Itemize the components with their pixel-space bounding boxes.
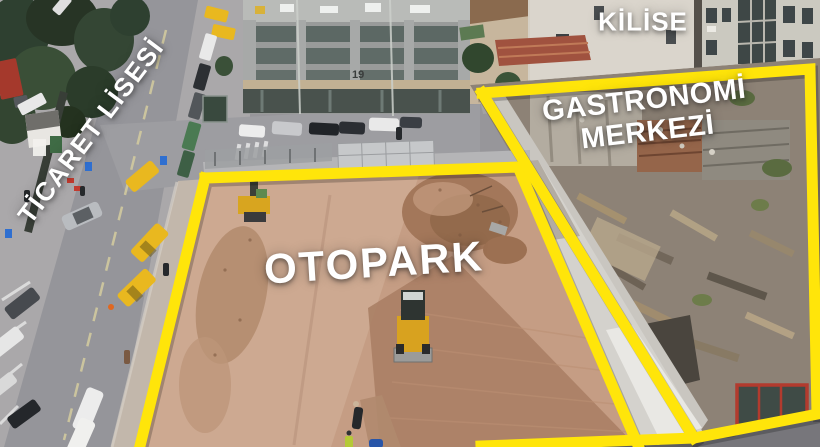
building-sign: 19 <box>352 69 364 81</box>
label-kilise: KİLİSE <box>598 8 688 37</box>
bus-shelter <box>203 96 227 122</box>
annotated-aerial-photo: 19 <box>0 0 820 447</box>
concrete-blocks <box>338 140 435 168</box>
worker-vest <box>345 436 353 447</box>
traffic-cone <box>108 304 114 310</box>
